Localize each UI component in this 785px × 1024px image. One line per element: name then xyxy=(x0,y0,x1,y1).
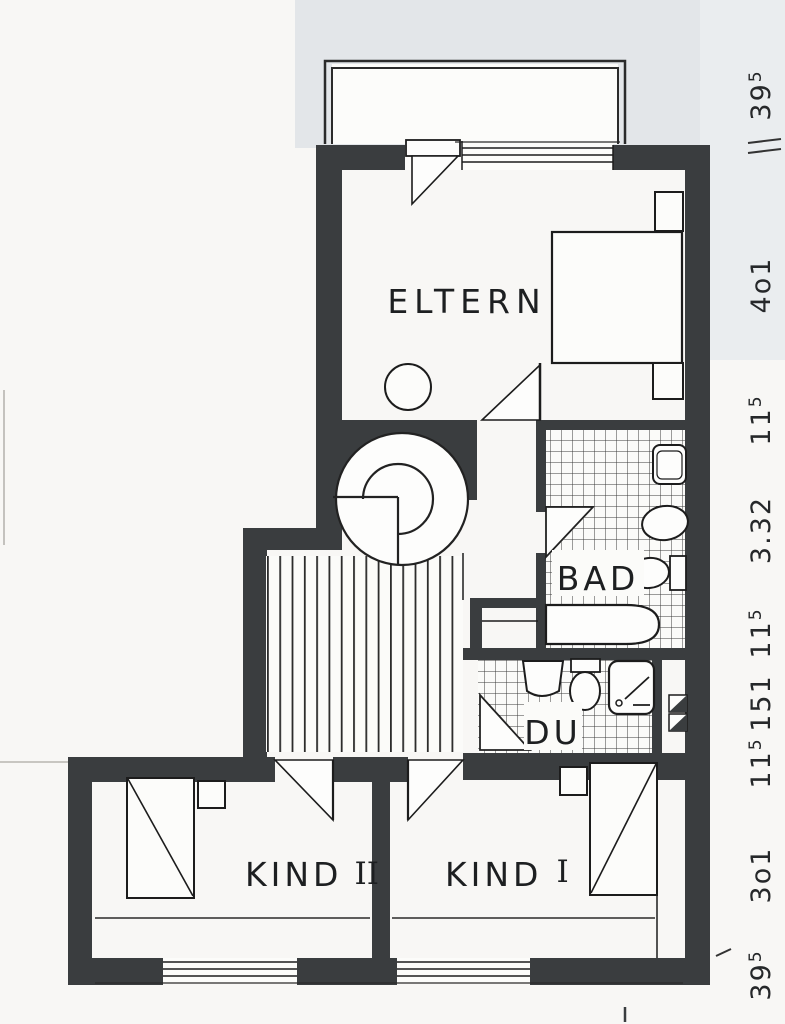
shower-tray xyxy=(609,661,654,714)
wall-bottom-left xyxy=(68,958,163,985)
wall-bottom-center xyxy=(297,958,397,985)
wall-eltern-bad xyxy=(536,420,710,430)
dimension-label: 4o1 xyxy=(746,257,777,314)
wall-bottom-right xyxy=(530,958,710,985)
staircase-hatching xyxy=(266,556,463,752)
room-label-kind2: KINDII xyxy=(245,855,379,894)
wall-right xyxy=(685,145,710,985)
double-bed xyxy=(552,232,682,363)
nightstand xyxy=(198,781,225,808)
bidet-cistern xyxy=(670,556,686,590)
shower-drain xyxy=(616,700,622,706)
door-leaf xyxy=(406,140,460,156)
wall-bad-left-upper xyxy=(536,428,546,512)
balcony xyxy=(325,61,625,144)
room-label-kind2-numeral: II xyxy=(354,856,379,892)
dimension-label: 3.32 xyxy=(746,496,777,564)
shower-room-sink xyxy=(523,661,563,696)
room-label-kind2-word: KIND xyxy=(245,855,342,894)
bathtub xyxy=(546,605,659,644)
floor-plan-drawing: ELTERN BAD DU KINDII KINDI 395 4o1 115 3… xyxy=(0,0,785,1024)
room-label-kind1-numeral: I xyxy=(556,854,568,890)
wall-left xyxy=(68,757,92,985)
room-label-du: DU xyxy=(524,713,582,752)
nightstand xyxy=(655,192,683,231)
wall-kind-top-mid xyxy=(333,757,372,782)
round-table xyxy=(385,364,431,410)
chimney-outer-circle xyxy=(336,433,468,565)
wall-stair-left xyxy=(243,528,267,782)
dimension-label: 3o1 xyxy=(746,847,777,904)
balcony-floor xyxy=(332,64,618,144)
room-label-kind1-word: KIND xyxy=(445,855,542,894)
wall-kind1-top-pier xyxy=(390,757,408,782)
bath-sink-basin xyxy=(657,451,682,479)
room-label-bad: BAD xyxy=(557,559,640,598)
dimension-label: 151 xyxy=(746,674,777,732)
shower-toilet-cistern xyxy=(571,659,600,672)
nightstand xyxy=(560,767,587,795)
room-label-eltern: ELTERN xyxy=(387,282,546,321)
nightstand xyxy=(653,363,683,399)
scanned-floor-plan-page: ELTERN BAD DU KINDII KINDI 395 4o1 115 3… xyxy=(0,0,785,1024)
